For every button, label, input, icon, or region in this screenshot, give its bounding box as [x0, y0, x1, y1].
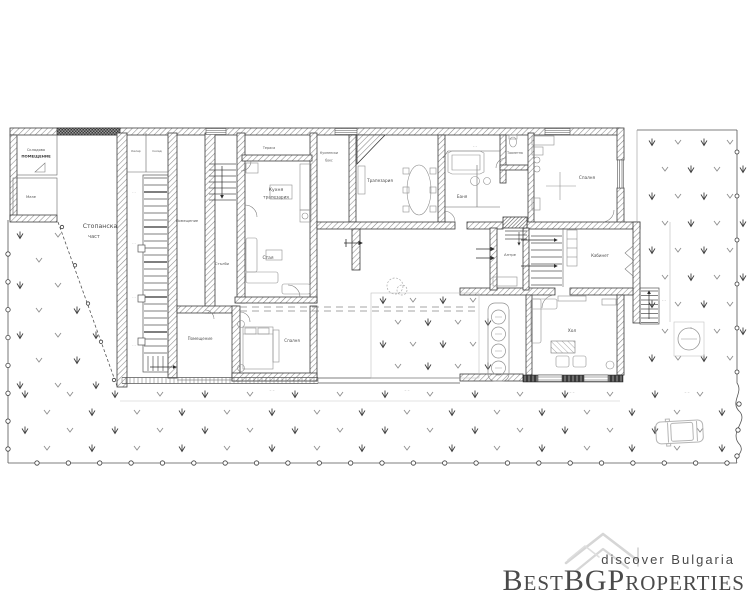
- label-living: Хол: [568, 328, 577, 334]
- svg-text:– –: – –: [269, 387, 274, 392]
- svg-text:– –: – –: [684, 389, 689, 394]
- label-niche-line2: бокс: [325, 159, 333, 163]
- label-bath: Баня: [457, 194, 468, 199]
- walls: [10, 128, 640, 387]
- svg-text:– –: – –: [132, 295, 136, 299]
- label-storage1-line1: Складово: [27, 148, 45, 152]
- watermark: discover Bulgaria BestBGProperties: [503, 534, 745, 597]
- svg-text:– –: – –: [662, 298, 667, 302]
- svg-text:– –: – –: [132, 343, 136, 347]
- svg-text:– –: – –: [404, 387, 409, 392]
- roof-overhang-dashes: [240, 307, 480, 311]
- exterior-stairs: [640, 288, 659, 324]
- label-entry: Антре: [504, 252, 517, 257]
- label-narrow-room: Помещение: [176, 219, 199, 223]
- fence-posts: [6, 150, 741, 465]
- label-wc: Тоалетна: [506, 151, 523, 155]
- label-room2: Помещение: [188, 336, 213, 341]
- yard-plants-bottom: [22, 391, 725, 452]
- svg-text:– –: – –: [569, 389, 574, 394]
- yard-plants-right: [649, 139, 746, 362]
- furniture: [238, 135, 617, 372]
- label-bedroom1: Спалня: [284, 338, 300, 343]
- dimension-marks: – – – – – – – – – – – – – – – – – – – –: [132, 144, 690, 394]
- floor-plan-drawing: Складово ПОМЕЩЕНИЕ Мазе Стопанска част К…: [0, 0, 750, 600]
- label-dining: Трапезария: [366, 178, 393, 183]
- label-storage1-line2: ПОМЕЩЕНИЕ: [21, 154, 51, 159]
- label-storage2: Мазе: [26, 194, 37, 199]
- garden-tree: [387, 278, 407, 295]
- svg-text:– –: – –: [473, 144, 478, 148]
- parked-car: [655, 417, 703, 446]
- label-niche-line1: Кухненски: [320, 151, 338, 155]
- garden-table: [678, 328, 700, 350]
- label-farm-line2: част: [88, 234, 100, 240]
- label-cell2: Склад: [152, 149, 161, 153]
- label-bedroom2: Спалня: [579, 175, 596, 180]
- label-room-mid: Стая: [263, 255, 274, 261]
- label-stairhall: Стълби: [215, 262, 230, 266]
- yard-plants-terrace: [380, 297, 491, 370]
- label-kitchen-line2: трапезария: [263, 195, 289, 200]
- floor-plan-page: Складово ПОМЕЩЕНИЕ Мазе Стопанска част К…: [0, 0, 750, 600]
- svg-text:– –: – –: [132, 241, 136, 245]
- label-cabinet: Кабинет: [591, 253, 609, 258]
- label-farm-line1: Стопанска: [83, 223, 118, 230]
- stepping-stones: [488, 303, 509, 381]
- label-kitchen-line1: Кухня: [269, 187, 284, 193]
- entry-arrows: [344, 239, 494, 258]
- yard-plants-left: [17, 232, 118, 389]
- watermark-brand: BestBGProperties: [503, 564, 745, 597]
- svg-text:– –: – –: [132, 190, 136, 194]
- label-terrace: Тераса: [262, 146, 275, 150]
- label-cell1: Килер: [131, 149, 141, 153]
